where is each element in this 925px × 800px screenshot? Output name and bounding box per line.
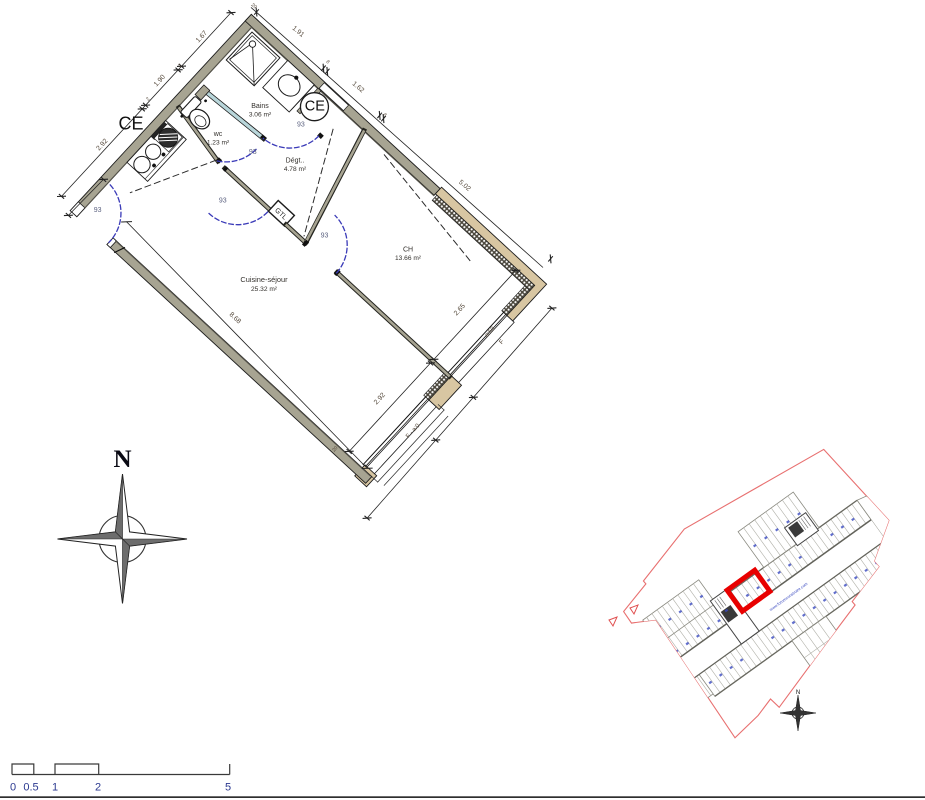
svg-text:13.66 m²: 13.66 m² <box>395 255 422 262</box>
svg-text:93: 93 <box>297 122 305 129</box>
svg-text:4.78 m²: 4.78 m² <box>284 166 307 173</box>
svg-text:93: 93 <box>94 207 102 214</box>
svg-text:93: 93 <box>321 233 329 240</box>
svg-text:3.06 m²: 3.06 m² <box>249 112 272 119</box>
svg-text:wc: wc <box>213 131 223 138</box>
svg-text:N: N <box>796 690 800 696</box>
svg-text:N: N <box>113 446 131 473</box>
svg-text:93: 93 <box>249 149 257 156</box>
svg-text:25.32 m²: 25.32 m² <box>251 286 278 293</box>
svg-text:0: 0 <box>10 782 16 794</box>
svg-text:1.23 m²: 1.23 m² <box>207 140 230 147</box>
svg-text:Bains: Bains <box>251 103 269 110</box>
svg-text:CH: CH <box>403 247 413 254</box>
svg-text:1: 1 <box>52 782 58 794</box>
svg-text:Cuisine-séjour: Cuisine-séjour <box>240 275 288 284</box>
svg-text:93: 93 <box>219 198 227 205</box>
svg-text:0.5: 0.5 <box>23 782 38 794</box>
svg-text:CE: CE <box>118 114 143 134</box>
svg-text:2: 2 <box>95 782 101 794</box>
svg-text:5: 5 <box>225 782 231 794</box>
svg-text:CE: CE <box>305 99 325 115</box>
svg-text:Dégt..: Dégt.. <box>286 158 305 165</box>
